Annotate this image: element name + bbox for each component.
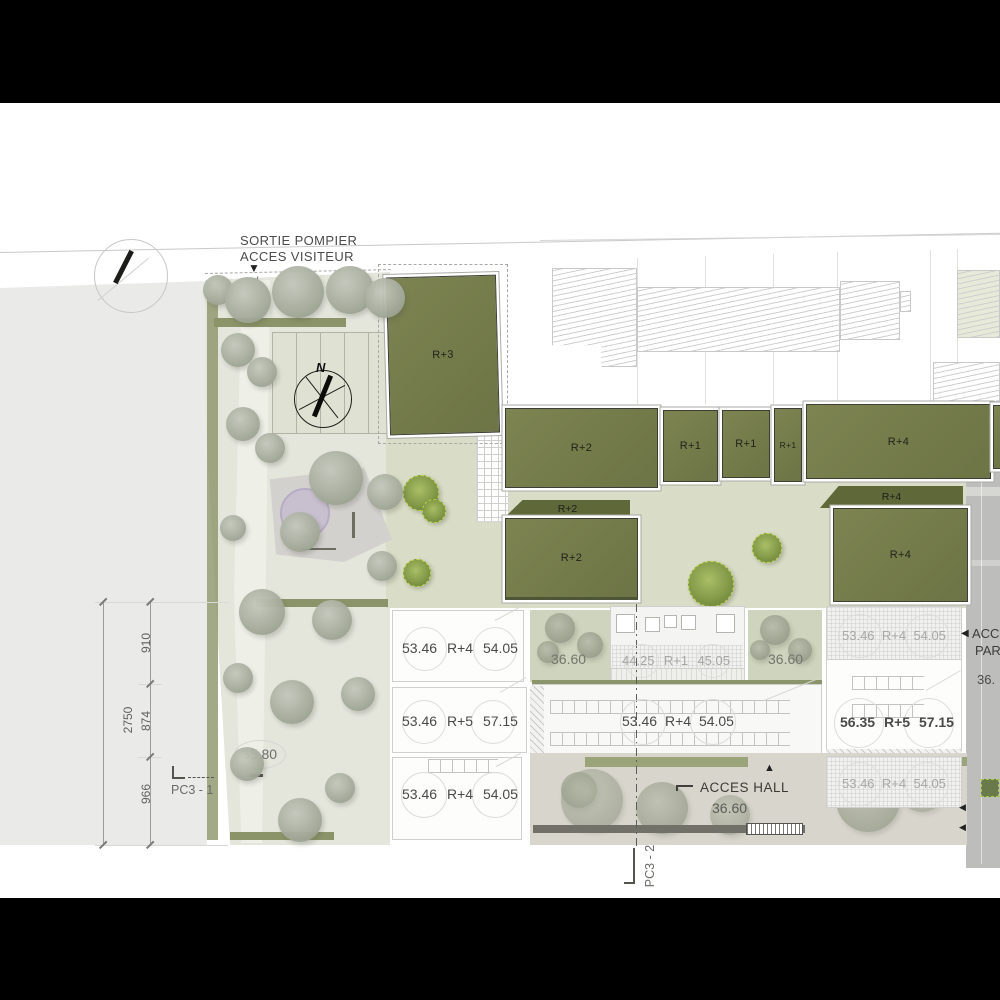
level-floors: R+4 <box>447 786 473 802</box>
level-annotation-row1-left: 53.46 R+4 54.05 <box>402 640 518 656</box>
dimension-910: 910 <box>139 623 153 663</box>
level-floors: R+1 <box>664 653 688 668</box>
rooflight <box>616 614 635 633</box>
entrance-arrow-icon: ▼ <box>248 261 260 275</box>
level-annotation-row2-left: 53.46 R+5 57.15 <box>402 713 518 729</box>
level-high: 54.05 <box>483 640 518 656</box>
hedge-strip <box>585 757 748 767</box>
level-low: 53.46 <box>402 786 437 802</box>
building-r4-shadow-band: R+4 <box>820 486 963 508</box>
building-r1-b-label: R+1 <box>735 438 756 450</box>
level-high: 57.15 <box>919 714 954 730</box>
section-marker-pc3-2 <box>633 848 635 884</box>
tree <box>341 677 375 711</box>
building-green-sliver <box>993 405 1000 469</box>
level-floors: R+4 <box>665 713 691 729</box>
tree <box>367 474 403 510</box>
building-r3-label: R+3 <box>432 349 454 362</box>
park-hedge-west <box>207 284 218 840</box>
level-high: 45.05 <box>697 653 730 668</box>
street-arrow-icon: ◀ <box>961 628 969 639</box>
road-edge-line-2 <box>540 234 1000 241</box>
building-r2-shadow-band: R+2 <box>505 500 630 517</box>
tree <box>239 589 285 635</box>
street-label-frag1: ACC <box>972 626 999 641</box>
existing-building-hatched <box>900 291 911 312</box>
tree <box>272 266 324 318</box>
dimension-966: 966 <box>139 774 153 814</box>
section-label-pc3-2: PC3 - 2 <box>643 840 657 892</box>
rooflight <box>716 614 735 633</box>
tree <box>225 277 271 323</box>
tree <box>561 769 623 831</box>
window-row <box>550 700 790 714</box>
tree <box>545 613 575 643</box>
level-high: 54.05 <box>483 786 518 802</box>
building-r1-b: R+1 <box>722 410 770 478</box>
tree <box>226 407 260 441</box>
street-label-frag3: 36. <box>977 672 995 687</box>
park-hedge-row <box>214 318 346 327</box>
level-low: 44.25 <box>622 653 655 668</box>
tree <box>325 773 355 803</box>
building-r4-top-label: R+4 <box>888 436 909 448</box>
ground-level-court-a: 36.60 <box>551 651 586 667</box>
level-high: 54.05 <box>913 776 946 791</box>
parcel-line <box>930 250 931 402</box>
level-low: 53.46 <box>402 640 437 656</box>
tree <box>220 515 246 541</box>
entrance-label-line1: SORTIE POMPIER <box>240 233 357 248</box>
existing-building-hatched <box>637 287 840 352</box>
letterbox-top <box>0 0 1000 103</box>
site-plan-canvas: SORTIE POMPIER ACCES VISITEUR ▼ N R+3 R+… <box>0 0 1000 1000</box>
building-r2-low: R+2 <box>505 518 638 600</box>
existing-building-hatched <box>933 362 1000 402</box>
rooflight <box>645 617 660 632</box>
tree <box>365 278 405 318</box>
level-low: 53.46 <box>402 713 437 729</box>
street-lane-mark <box>966 487 1000 496</box>
street-arrow-icon: ◀ <box>959 822 966 833</box>
dimension-874: 874 <box>139 701 153 741</box>
tree <box>309 451 363 505</box>
tree <box>270 680 314 724</box>
level-floors: R+4 <box>447 640 473 656</box>
stair-hatch <box>530 686 544 754</box>
level-annotation-row2-right: 56.35 R+5 57.15 <box>840 714 954 730</box>
level-annotation-strip-mid: 44.25 R+1 45.05 <box>622 653 730 668</box>
dimension-line-total <box>103 602 104 846</box>
existing-building-hatched <box>840 281 900 340</box>
ramp-stairs <box>746 823 803 835</box>
building-r2-top: R+2 <box>505 408 658 488</box>
section-label-pc3-1: PC3 - 1 <box>171 783 213 797</box>
acces-hall-label: ACCES HALL <box>700 780 789 795</box>
level-low: 53.46 <box>622 713 657 729</box>
street-arrow-icon: ◀ <box>959 802 966 813</box>
level-floors: R+4 <box>882 776 906 791</box>
building-r2-low-label: R+2 <box>561 552 582 564</box>
level-annotation-row3-right: 53.46 R+4 54.05 <box>842 776 946 791</box>
level-high: 54.05 <box>913 628 946 643</box>
tree <box>280 512 320 552</box>
building-r2-band-label: R+2 <box>558 503 578 515</box>
existing-building-hatched <box>957 270 1000 338</box>
north-label: N <box>316 360 325 375</box>
rooflight <box>664 615 677 628</box>
building-r1-a: R+1 <box>663 410 718 482</box>
level-annotation-row1-right: 53.46 R+4 54.05 <box>842 628 946 643</box>
tree <box>403 559 431 587</box>
tree <box>367 551 397 581</box>
level-floors: R+4 <box>882 628 906 643</box>
existing-building-hatched <box>552 268 637 367</box>
street-label-frag2: PAR <box>975 643 1000 658</box>
level-annotation-row3-left: 53.46 R+4 54.05 <box>402 786 518 802</box>
window-row <box>550 732 790 746</box>
tree <box>688 561 734 607</box>
section-marker-pc3-2-foot <box>624 882 635 884</box>
bench <box>352 512 355 538</box>
level-floors: R+5 <box>884 714 910 730</box>
rooflight <box>681 615 696 630</box>
building-r4-top: R+4 <box>806 404 991 479</box>
dimension-2750: 2750 <box>121 696 135 744</box>
building-r4-low: R+4 <box>833 508 968 602</box>
level-high: 57.15 <box>483 713 518 729</box>
section-marker-pc3-1-foot <box>172 777 185 779</box>
level-high: 54.05 <box>699 713 734 729</box>
tree <box>312 600 352 640</box>
tree <box>230 747 264 781</box>
building-r1-c-label: R+1 <box>780 440 797 450</box>
tree <box>255 433 285 463</box>
extension-line <box>95 845 228 846</box>
building-r1-c: R+1 <box>774 408 802 482</box>
street-lane-mark <box>966 560 1000 566</box>
section-marker-pc3-1-dash <box>188 777 214 778</box>
building-r2-top-label: R+2 <box>571 442 592 454</box>
tree <box>750 640 770 660</box>
bench-icon <box>676 785 693 791</box>
level-low: 56.35 <box>840 714 875 730</box>
tree <box>422 499 446 523</box>
level-low: 53.46 <box>842 776 875 791</box>
level-floors: R+5 <box>447 713 473 729</box>
building-r4-band-label: R+4 <box>882 491 902 503</box>
tree <box>752 533 782 563</box>
extension-line <box>95 602 228 603</box>
letterbox-bottom <box>0 898 1000 1000</box>
street-tree-marker <box>981 779 999 797</box>
ground-level-court-b: 36.60 <box>768 651 803 667</box>
tree <box>278 798 322 842</box>
building-r1-a-label: R+1 <box>680 440 701 452</box>
tree <box>223 663 253 693</box>
tree <box>247 357 277 387</box>
window-row <box>428 759 498 773</box>
acces-hall-arrow-icon: ▲ <box>764 762 775 774</box>
window-row <box>852 676 924 690</box>
level-annotation-row2-mid: 53.46 R+4 54.05 <box>622 713 734 729</box>
building-r4-low-label: R+4 <box>890 549 911 561</box>
level-low: 53.46 <box>842 628 875 643</box>
ground-level-hall: 36.60 <box>712 800 747 816</box>
